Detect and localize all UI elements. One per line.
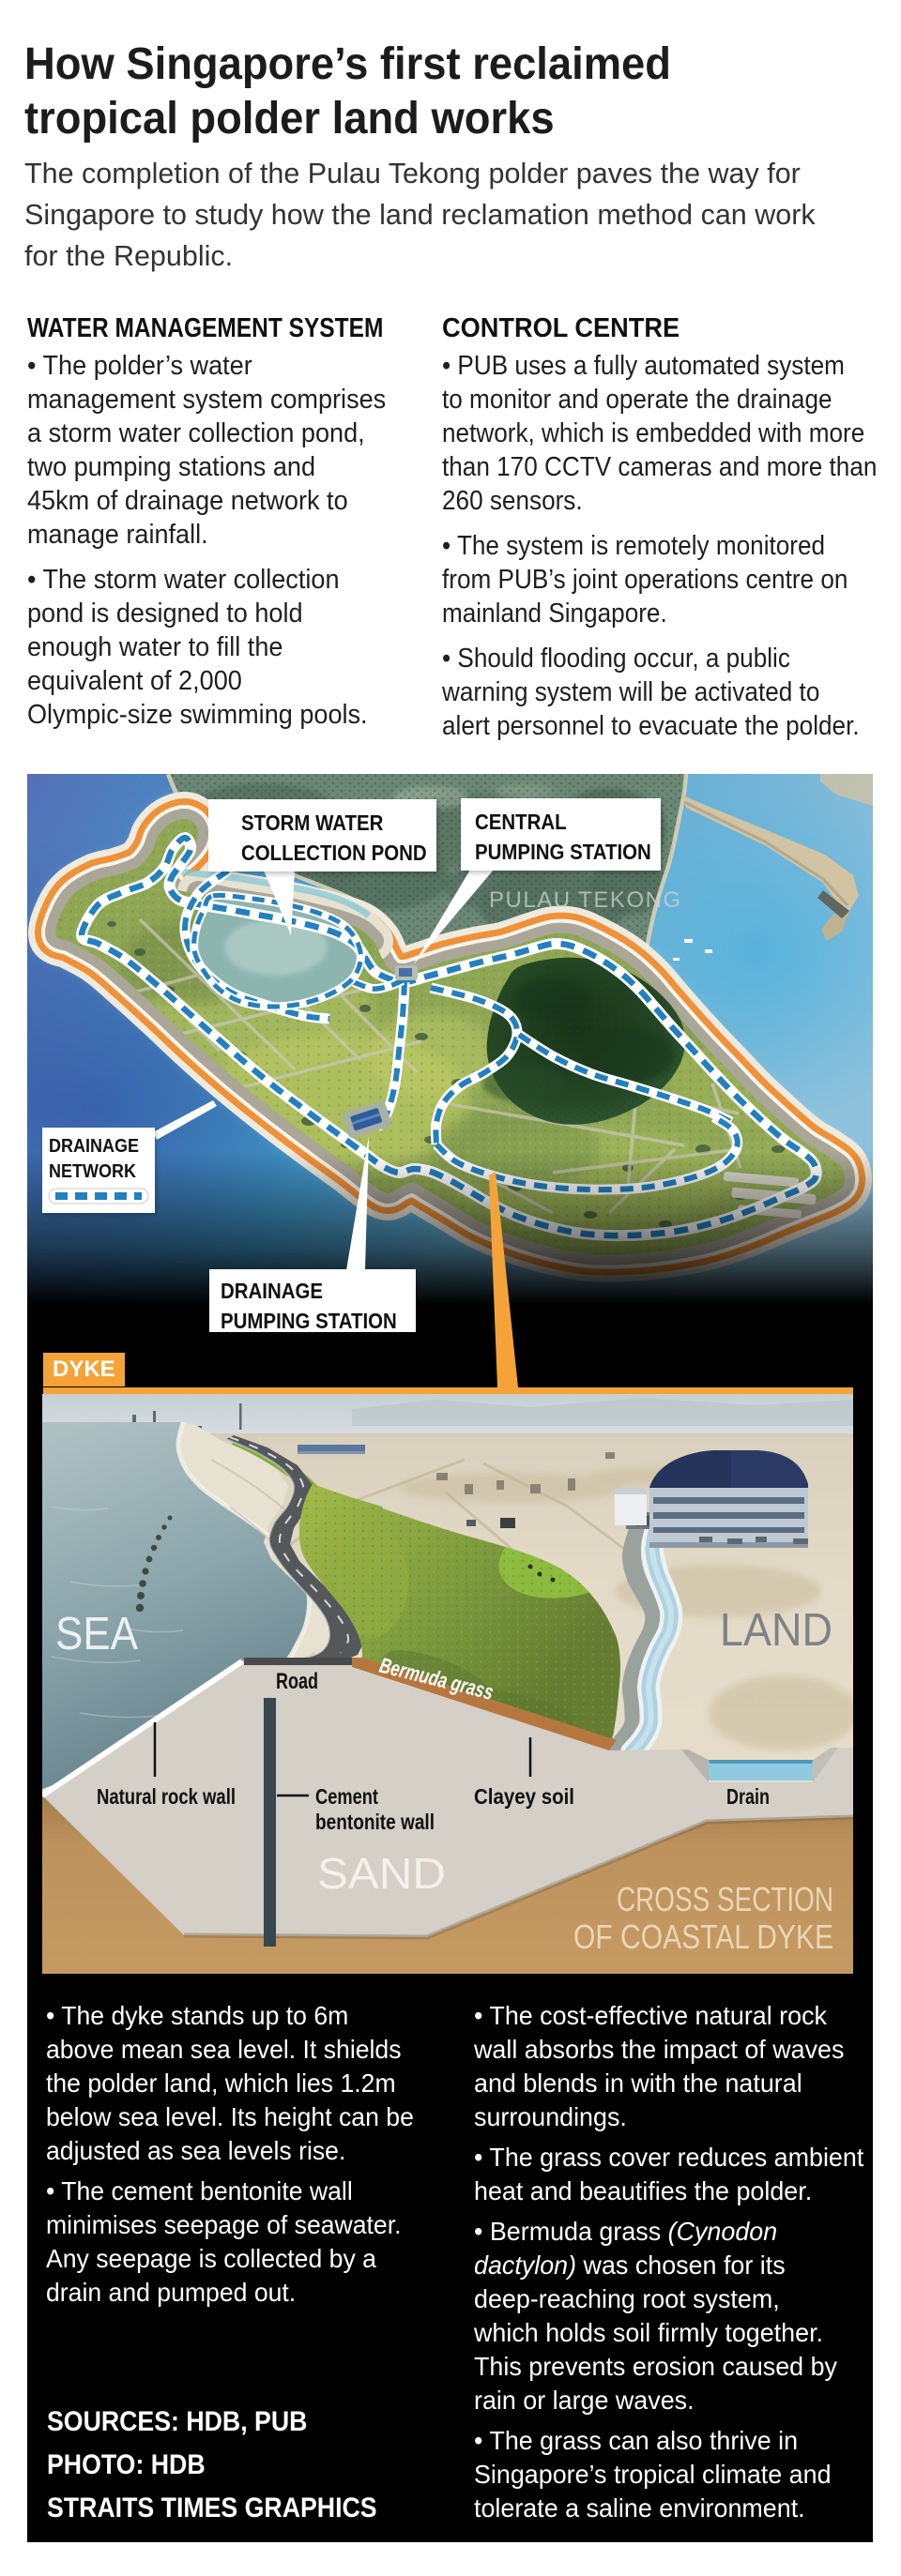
svg-text:SAND: SAND xyxy=(317,1849,446,1898)
svg-text:bentonite wall: bentonite wall xyxy=(315,1810,435,1834)
svg-text:LAND: LAND xyxy=(720,1605,832,1656)
svg-text:OF COASTAL DYKE: OF COASTAL DYKE xyxy=(573,1917,833,1956)
svg-text:Cement: Cement xyxy=(315,1784,378,1809)
svg-text:PULAU TEKONG: PULAU TEKONG xyxy=(489,887,682,913)
svg-text:Clayey soil: Clayey soil xyxy=(474,1784,574,1809)
svg-text:Drain: Drain xyxy=(726,1784,770,1809)
svg-text:CROSS SECTION: CROSS SECTION xyxy=(617,1880,833,1918)
svg-text:SEA: SEA xyxy=(55,1609,138,1659)
svg-text:Road: Road xyxy=(276,1669,318,1694)
svg-text:Natural rock wall: Natural rock wall xyxy=(97,1784,236,1809)
